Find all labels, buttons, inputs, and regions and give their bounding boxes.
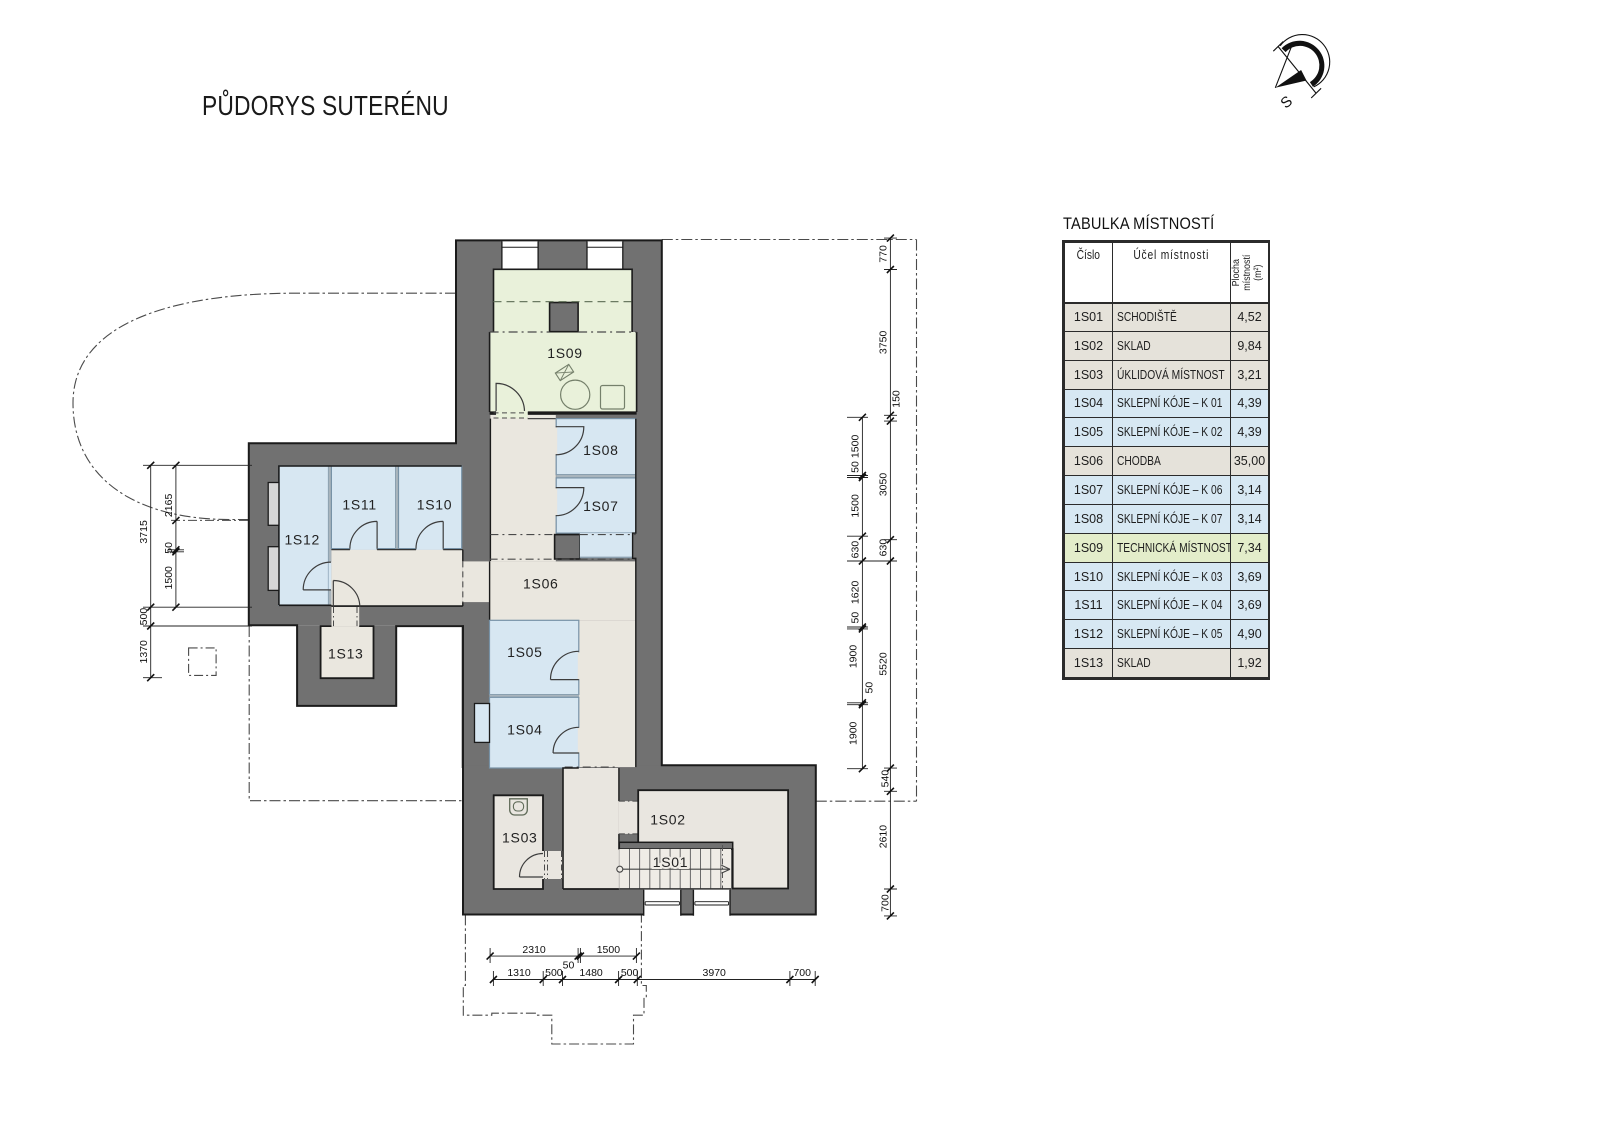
svg-text:500: 500 xyxy=(545,967,563,979)
svg-text:5520: 5520 xyxy=(878,652,890,676)
svg-text:700: 700 xyxy=(879,894,891,912)
svg-text:1620: 1620 xyxy=(850,581,862,605)
svg-text:1S13: 1S13 xyxy=(328,645,364,661)
svg-text:1S08: 1S08 xyxy=(583,442,619,458)
svg-text:1500: 1500 xyxy=(850,494,862,518)
svg-text:770: 770 xyxy=(878,245,890,263)
svg-text:2310: 2310 xyxy=(522,944,546,956)
svg-text:1900: 1900 xyxy=(848,721,860,745)
svg-text:540: 540 xyxy=(879,770,891,788)
svg-text:630: 630 xyxy=(878,539,890,557)
svg-text:1310: 1310 xyxy=(507,967,531,979)
svg-text:3050: 3050 xyxy=(878,473,890,497)
svg-text:1500: 1500 xyxy=(597,944,621,956)
svg-text:500: 500 xyxy=(621,967,639,979)
svg-text:1S02: 1S02 xyxy=(650,812,686,828)
svg-text:1500: 1500 xyxy=(163,566,175,590)
svg-text:50: 50 xyxy=(163,542,175,554)
svg-text:2165: 2165 xyxy=(163,494,175,518)
svg-text:150: 150 xyxy=(891,390,903,408)
svg-text:700: 700 xyxy=(793,967,811,979)
svg-text:500: 500 xyxy=(138,608,150,626)
svg-text:S: S xyxy=(1277,93,1296,112)
svg-text:50: 50 xyxy=(864,682,876,694)
svg-text:1500: 1500 xyxy=(850,435,862,459)
svg-text:1S07: 1S07 xyxy=(583,498,619,514)
svg-text:630: 630 xyxy=(850,541,862,559)
svg-text:50: 50 xyxy=(850,612,862,624)
svg-text:1370: 1370 xyxy=(138,640,150,664)
svg-text:3715: 3715 xyxy=(138,520,150,544)
svg-text:1S03: 1S03 xyxy=(502,830,538,846)
svg-text:1S12: 1S12 xyxy=(284,531,320,547)
svg-text:1S06: 1S06 xyxy=(523,576,559,592)
svg-text:PŮDORYS SUTERÉNU: PŮDORYS SUTERÉNU xyxy=(202,88,449,122)
svg-text:3970: 3970 xyxy=(703,967,727,979)
svg-text:50: 50 xyxy=(563,960,575,972)
svg-text:50: 50 xyxy=(850,461,862,473)
svg-text:1S04: 1S04 xyxy=(507,722,543,738)
svg-text:1S09: 1S09 xyxy=(547,345,583,361)
svg-text:3750: 3750 xyxy=(878,331,890,355)
svg-text:2610: 2610 xyxy=(878,825,890,849)
svg-text:1S01: 1S01 xyxy=(653,854,689,870)
svg-text:1900: 1900 xyxy=(848,645,860,669)
svg-text:1S10: 1S10 xyxy=(417,496,453,512)
svg-text:1S11: 1S11 xyxy=(342,496,376,512)
svg-text:1S05: 1S05 xyxy=(507,644,543,660)
svg-text:1480: 1480 xyxy=(579,967,603,979)
